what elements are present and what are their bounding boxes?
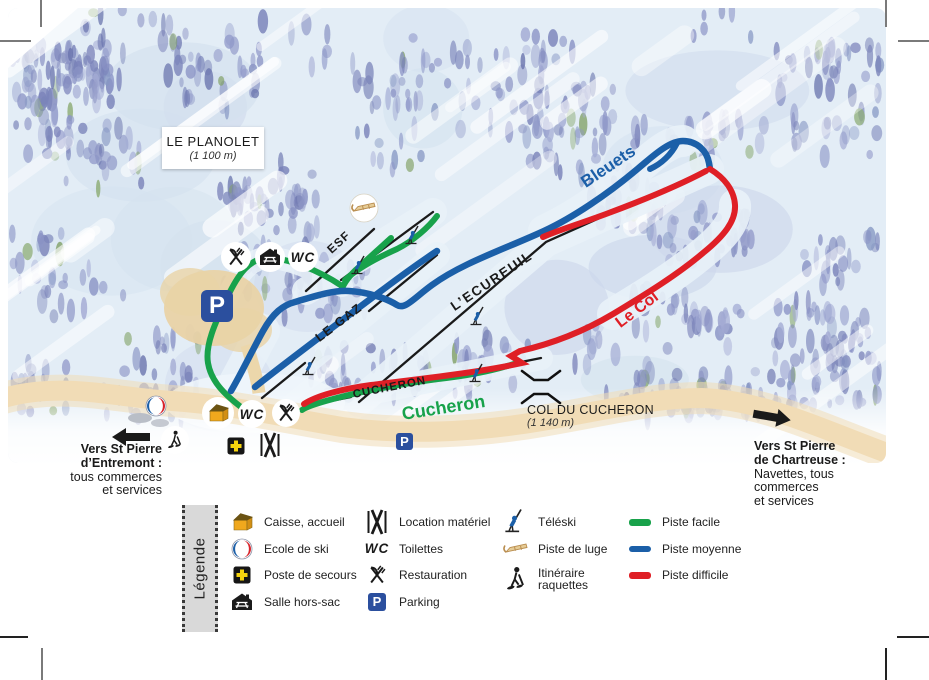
legend-item: Poste de secours — [228, 562, 357, 589]
legend-item-label: Ecole de ski — [264, 543, 329, 556]
legend-pistes-column: Piste facile Piste moyenne Piste diffici… — [626, 509, 741, 589]
legend-item: Ecole de ski — [228, 536, 357, 563]
station-name: LE PLANOLET — [167, 134, 260, 149]
piste-difficile-swatch — [626, 572, 654, 579]
legend-title-bar: Légende — [182, 505, 218, 632]
piste-map-page: { "station": {"title": "LE PLANOLET", "e… — [0, 0, 929, 680]
piste-moyenne-swatch — [626, 546, 654, 553]
legend-item-label: Poste de secours — [264, 569, 357, 582]
legend-activities-column: Téléski Piste de luge Itinéraire raquett… — [502, 509, 610, 596]
legend-item-label: Salle hors-sac — [264, 596, 340, 609]
legend-item-label: Caisse, accueil — [264, 516, 345, 529]
legend-item-label: Piste facile — [662, 516, 720, 529]
piste-facile-swatch — [626, 519, 654, 526]
legend-title: Légende — [192, 538, 209, 600]
parking-icon: P — [363, 593, 391, 611]
legend-item-label: Location matériel — [399, 516, 490, 529]
legend-item: Itinéraire raquettes — [502, 562, 610, 596]
legend-item: Salle hors-sac — [228, 589, 357, 616]
direction-east-line1: Vers St Pierre — [754, 440, 894, 454]
station-elevation: (1 100 m) — [189, 150, 236, 162]
legend-item: Piste facile — [626, 509, 741, 536]
legend-facilities-column: Location matériel WC Toilettes Restaurat… — [363, 509, 490, 615]
direction-east-line5: et services — [754, 495, 894, 509]
direction-east-line4: commerces — [754, 481, 894, 495]
legend-item-label: Piste de luge — [538, 543, 607, 556]
legend-item-label: Toilettes — [399, 543, 443, 556]
direction-west-line2: d’Entremont : — [38, 457, 162, 471]
direction-west: Vers St Pierre d’Entremont : tous commer… — [38, 443, 162, 498]
legend-item: WC Toilettes — [363, 536, 490, 563]
picnic-hut-icon — [228, 590, 256, 614]
sled-run-icon — [350, 194, 378, 222]
legend-services-column: Caisse, accueil Ecole de ski Poste de se… — [228, 509, 357, 615]
ticket-house-icon — [202, 397, 234, 429]
legend-item: Location matériel — [363, 509, 490, 536]
legend-item: Piste moyenne — [626, 536, 741, 563]
parking-icon: P — [396, 433, 413, 450]
direction-east-line3: Navettes, tous — [754, 468, 894, 482]
direction-east: Vers St Pierre de Chartreuse : Navettes,… — [754, 440, 894, 509]
restaurant-icon — [272, 399, 300, 427]
ski-school-icon — [146, 396, 166, 416]
legend-item-label: Piste moyenne — [662, 543, 741, 556]
snowshoe-icon — [502, 566, 530, 592]
legend-item-label: Restauration — [399, 569, 467, 582]
legend-item: Téléski — [502, 509, 610, 536]
legend-item: Piste difficile — [626, 562, 741, 589]
legend-item-label: Parking — [399, 596, 440, 609]
legend-item: Restauration — [363, 562, 490, 589]
legend-item: P Parking — [363, 589, 490, 616]
col-label-box: COL DU CUCHERON (1 140 m) — [527, 403, 654, 429]
restaurant-icon — [363, 562, 391, 588]
legend-item-label: Piste difficile — [662, 569, 728, 582]
legend-item-label: Itinéraire raquettes — [538, 567, 610, 592]
legend-item-label: Téléski — [538, 516, 576, 529]
toilets-label: WC — [286, 248, 320, 266]
ski-school-icon — [228, 537, 256, 561]
col-elevation: (1 140 m) — [527, 417, 654, 429]
teleski-icon — [502, 509, 530, 535]
toilets-icon: WC — [363, 541, 391, 556]
col-name: COL DU CUCHERON — [527, 403, 654, 417]
picnic-hut-icon — [255, 242, 285, 272]
ticket-house-icon — [228, 509, 256, 535]
toilets-label: WC — [235, 405, 269, 423]
sled-icon — [502, 538, 530, 560]
restaurant-icon — [221, 242, 251, 272]
ski-rental-icon — [363, 509, 391, 535]
direction-west-line3: tous commerces — [38, 471, 162, 485]
direction-west-line4: et services — [38, 484, 162, 498]
parking-icon: P — [201, 290, 233, 322]
legend-item: Caisse, accueil — [228, 509, 357, 536]
station-label-box: LE PLANOLET (1 100 m) — [162, 127, 264, 169]
direction-west-line1: Vers St Pierre — [38, 443, 162, 457]
first-aid-icon — [228, 438, 245, 455]
legend-item: Piste de luge — [502, 536, 610, 563]
snowshoe-icon — [161, 426, 189, 454]
first-aid-icon — [228, 564, 256, 586]
direction-east-line2: de Chartreuse : — [754, 454, 894, 468]
